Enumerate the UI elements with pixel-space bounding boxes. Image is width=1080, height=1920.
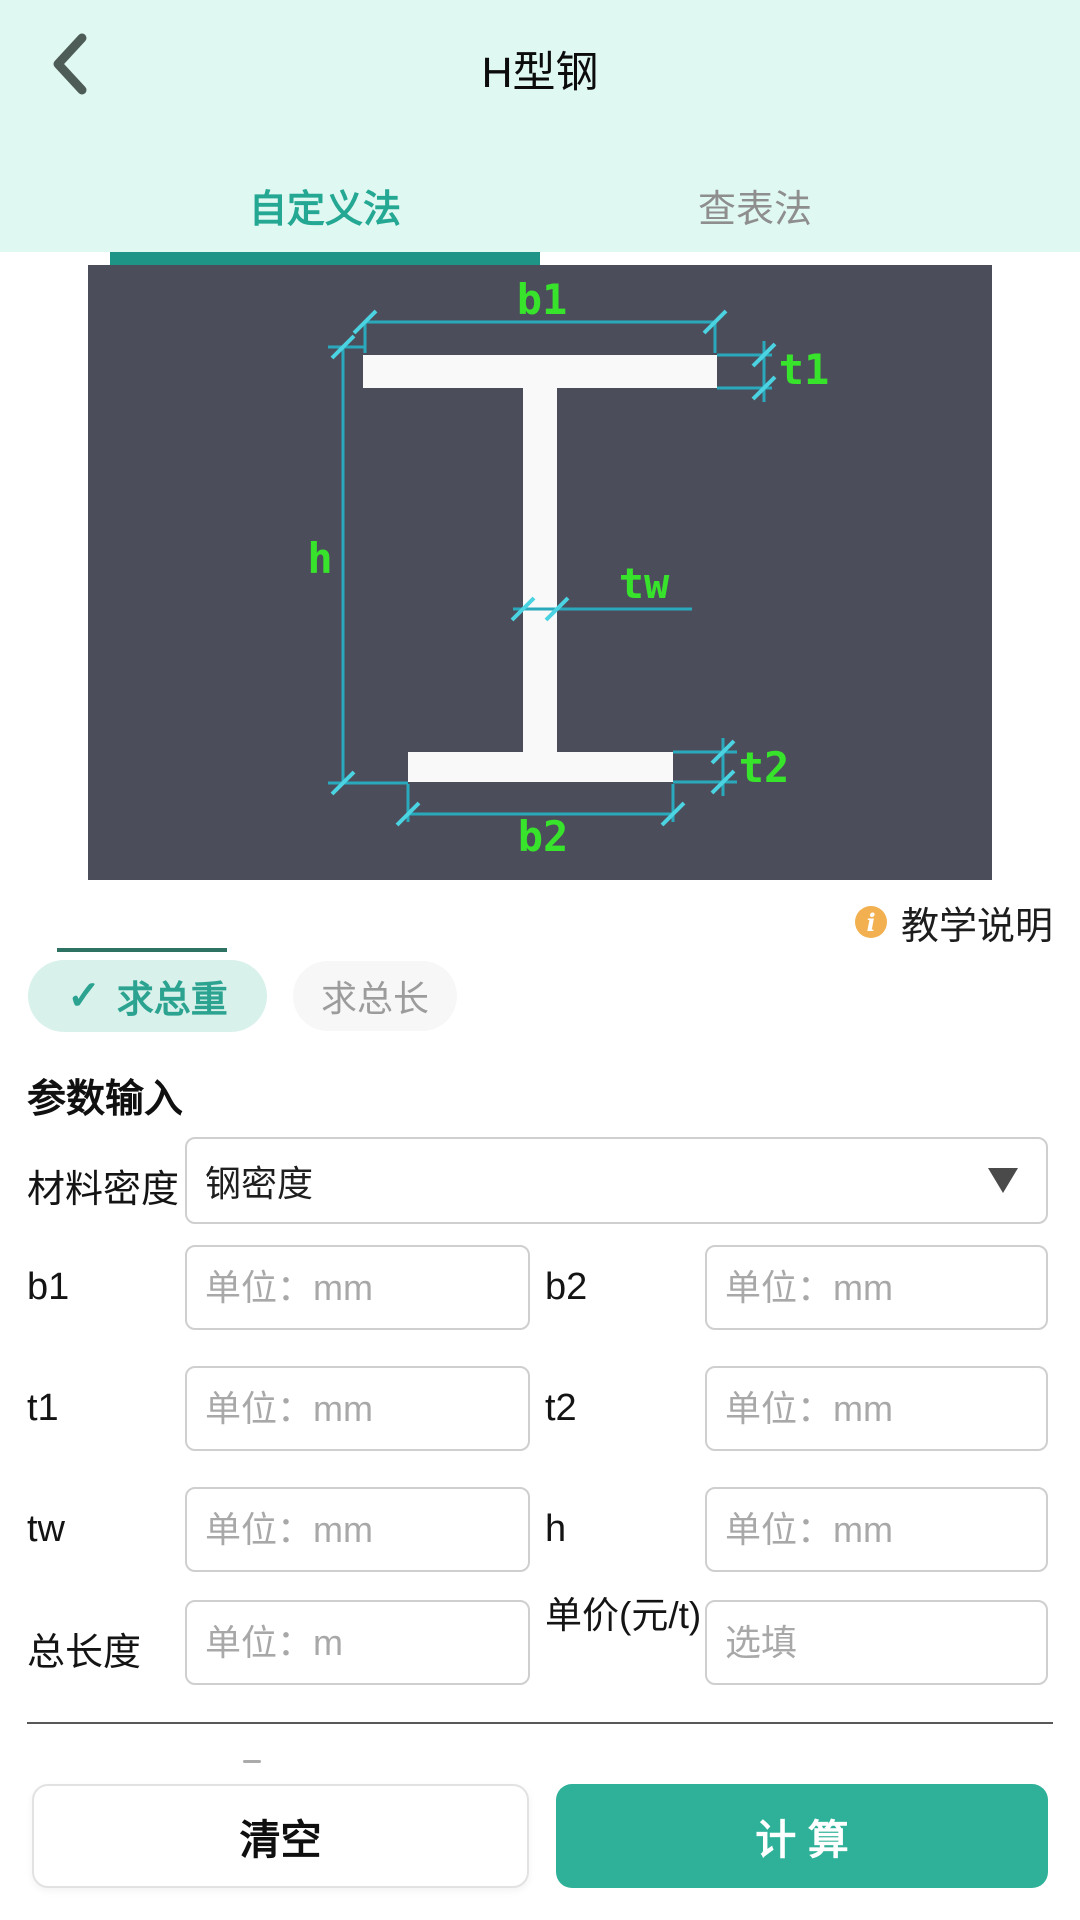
clear-button[interactable]: 清空 <box>32 1784 529 1888</box>
label-h: h <box>307 534 332 583</box>
field-label-total-length: 总长度 <box>27 1621 141 1676</box>
label-b1: b1 <box>517 275 568 324</box>
calculate-button[interactable]: 计 算 <box>556 1784 1048 1888</box>
field-label-b2: b2 <box>545 1266 587 1309</box>
input-b2[interactable] <box>705 1245 1048 1330</box>
teaching-note-link[interactable]: i 教学说明 <box>855 896 1053 948</box>
input-h[interactable] <box>705 1487 1048 1572</box>
mode-total-length-pill[interactable]: 求总长 <box>293 961 457 1031</box>
mode-total-weight-label: 求总重 <box>117 969 228 1023</box>
section-title-parameters: 参数输入 <box>27 1068 183 1124</box>
label-tw: tw <box>619 559 670 608</box>
label-t1: t1 <box>779 345 830 394</box>
density-select[interactable]: 钢密度 <box>185 1137 1048 1224</box>
scroll-hint-dash <box>243 1760 261 1763</box>
page-title: H型钢 <box>0 38 1080 100</box>
label-t2: t2 <box>739 743 790 792</box>
header: H型钢 自定义法 查表法 <box>0 0 1080 252</box>
teaching-note-label: 教学说明 <box>901 895 1053 950</box>
tab-lookup-method[interactable]: 查表法 <box>540 158 970 252</box>
mode-total-length-label: 求总长 <box>321 970 429 1022</box>
input-t2[interactable] <box>705 1366 1048 1451</box>
active-tab-indicator <box>110 252 540 265</box>
field-label-t1: t1 <box>27 1387 59 1430</box>
h-beam-diagram: b1 t1 h tw t2 b2 <box>88 265 992 880</box>
h-beam-drawing: b1 t1 h tw t2 b2 <box>88 265 992 880</box>
field-label-b1: b1 <box>27 1266 69 1309</box>
density-label: 材料密度 <box>27 1158 179 1213</box>
input-b1[interactable] <box>185 1245 530 1330</box>
info-icon: i <box>855 906 887 938</box>
input-total-length[interactable] <box>185 1600 530 1685</box>
check-icon: ✓ <box>67 973 101 1019</box>
field-label-tw: tw <box>27 1508 65 1551</box>
divider <box>27 1722 1053 1724</box>
field-label-h: h <box>545 1508 566 1551</box>
density-value: 钢密度 <box>187 1155 988 1207</box>
label-b2: b2 <box>518 812 569 861</box>
field-label-unit-price: 单价(元/t) <box>545 1592 710 1640</box>
input-t1[interactable] <box>185 1366 530 1451</box>
pill-accent-bar <box>57 948 227 952</box>
input-unit-price[interactable] <box>705 1600 1048 1685</box>
input-tw[interactable] <box>185 1487 530 1572</box>
mode-total-weight-pill[interactable]: ✓ 求总重 <box>28 960 267 1032</box>
tab-custom-method[interactable]: 自定义法 <box>110 158 540 252</box>
dropdown-caret-icon <box>988 1168 1018 1193</box>
tab-bar: 自定义法 查表法 <box>110 158 970 252</box>
field-label-t2: t2 <box>545 1387 577 1430</box>
h-beam-calculator-screen: H型钢 自定义法 查表法 <box>0 0 1080 1920</box>
